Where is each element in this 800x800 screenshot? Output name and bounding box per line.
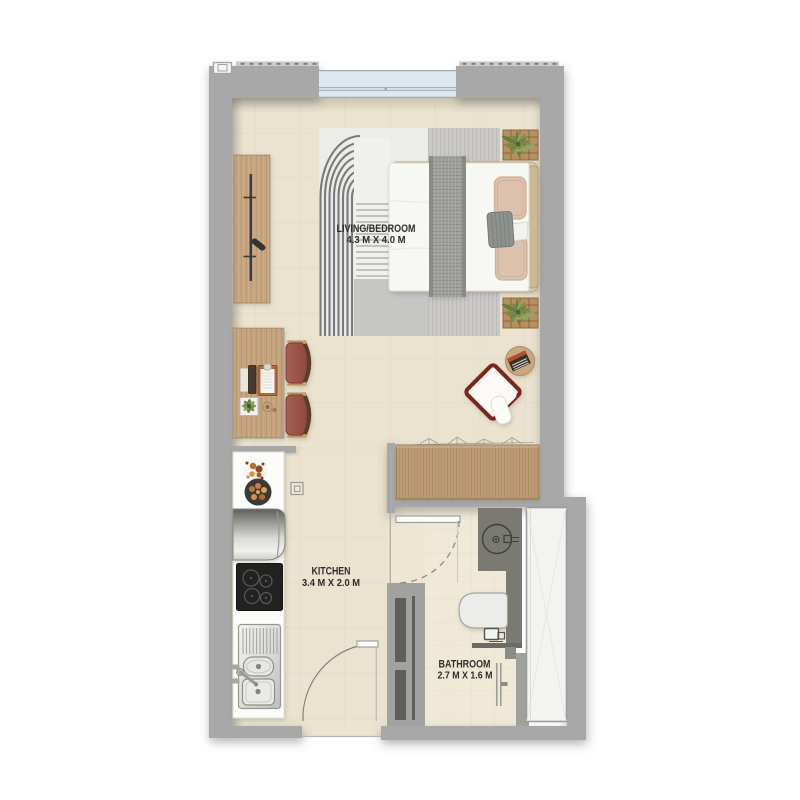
svg-text:KITCHEN: KITCHEN [312,566,351,578]
svg-text:2.7 M X 1.6 M: 2.7 M X 1.6 M [438,670,493,681]
svg-text:4.3 M X 4.0 M: 4.3 M X 4.0 M [347,235,406,246]
svg-text:3.4 M X 2.0 M: 3.4 M X 2.0 M [302,578,360,589]
svg-text:LIVING/BEDROOM: LIVING/BEDROOM [337,223,416,235]
svg-text:BATHROOM: BATHROOM [439,659,491,671]
